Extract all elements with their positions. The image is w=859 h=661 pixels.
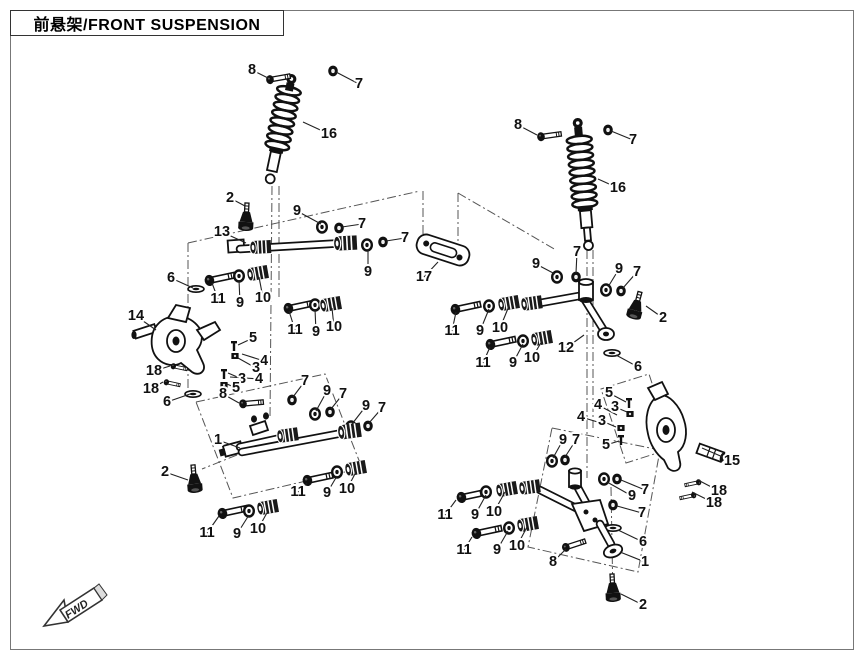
nut-3-4	[626, 411, 633, 417]
nut-7	[287, 395, 297, 406]
part-callout-9: 9	[493, 542, 501, 558]
title-block: 前悬架/FRONT SUSPENSION	[10, 10, 284, 36]
washer-9	[503, 521, 515, 535]
part-callout-7: 7	[339, 386, 347, 402]
nut-7	[612, 474, 622, 485]
shock-absorber-right	[565, 117, 601, 251]
nut-7	[608, 500, 618, 511]
part-callout-8: 8	[549, 554, 557, 570]
part-callout-9: 9	[471, 507, 479, 523]
part-callout-9: 9	[509, 355, 517, 371]
nut-7	[334, 223, 344, 234]
part-callout-9: 9	[233, 526, 241, 542]
part-callout-7: 7	[301, 373, 309, 389]
part-callout-7: 7	[358, 216, 366, 232]
nut-7	[603, 125, 613, 136]
part-callout-11: 11	[287, 322, 302, 338]
part-callout-6: 6	[163, 394, 171, 410]
part-callout-10: 10	[339, 481, 355, 497]
steering-knuckle-right	[646, 382, 726, 471]
nut-3-4	[617, 425, 624, 431]
plate-17	[414, 232, 472, 268]
part-callout-9: 9	[364, 264, 372, 280]
part-callout-18: 18	[706, 495, 722, 511]
part-callout-4: 4	[255, 371, 263, 387]
bushing-10	[319, 296, 342, 312]
shock-absorber-left	[258, 72, 305, 186]
part-callout-7: 7	[573, 244, 581, 260]
page-title: 前悬架/FRONT SUSPENSION	[34, 11, 261, 35]
part-callout-6: 6	[639, 534, 647, 550]
upper-a-arm-right	[520, 279, 614, 340]
pin-5	[618, 435, 624, 445]
nut-7-left-top	[328, 66, 338, 77]
part-callout-8: 8	[514, 117, 522, 133]
nut-7	[571, 272, 581, 283]
nut-3-4	[231, 353, 238, 359]
part-callout-9: 9	[615, 261, 623, 277]
part-callout-11: 11	[210, 291, 225, 307]
part-callout-2: 2	[659, 310, 667, 326]
part-callout-10: 10	[255, 290, 271, 306]
part-callout-11: 11	[199, 525, 214, 541]
part-callout-6: 6	[634, 359, 642, 375]
washer-9	[517, 334, 529, 348]
part-callout-9: 9	[476, 323, 484, 339]
bolt-8	[537, 129, 562, 141]
part-callout-1: 1	[214, 432, 222, 448]
ball-joint-2	[186, 464, 203, 493]
part-callout-15: 15	[724, 453, 740, 469]
part-callout-12: 12	[558, 340, 574, 356]
part-callout-2: 2	[161, 464, 169, 480]
ball-joint-2	[626, 290, 648, 321]
part-callout-1: 1	[641, 554, 649, 570]
part-callout-8: 8	[219, 386, 227, 402]
part-callout-9: 9	[628, 488, 636, 504]
part-callout-8: 8	[248, 62, 256, 78]
steering-knuckle-left	[131, 305, 220, 374]
part-callout-9: 9	[532, 256, 540, 272]
nut-7	[325, 407, 335, 418]
bushing-10	[516, 516, 539, 532]
part-callout-17: 17	[416, 269, 432, 285]
washer-9	[600, 283, 612, 297]
part-callout-9: 9	[362, 398, 370, 414]
bolt-11	[204, 270, 236, 287]
pin-5	[626, 398, 632, 408]
callout-layer: 8716213977917611910119101454334518186871…	[128, 62, 740, 613]
part-callout-16: 16	[610, 180, 626, 196]
part-callout-18: 18	[143, 381, 159, 397]
part-callout-10: 10	[250, 521, 266, 537]
part-callout-7: 7	[629, 132, 637, 148]
washer-9	[480, 485, 492, 499]
part-callout-7: 7	[633, 264, 641, 280]
part-callout-10: 10	[326, 319, 342, 335]
part-callout-10: 10	[524, 350, 540, 366]
bushing-10	[497, 295, 520, 311]
bushing-10	[495, 481, 518, 497]
part-callout-5: 5	[232, 380, 240, 396]
washer-9	[361, 238, 373, 252]
part-callout-11: 11	[290, 484, 305, 500]
left-assembly	[131, 66, 471, 520]
part-callout-7: 7	[401, 230, 409, 246]
fwd-arrow: FWD	[44, 584, 107, 626]
part-callout-9: 9	[236, 295, 244, 311]
part-callout-11: 11	[444, 323, 459, 339]
part-callout-4: 4	[594, 397, 602, 413]
washer-9	[546, 454, 558, 468]
part-callout-7: 7	[572, 432, 580, 448]
part-callout-10: 10	[486, 504, 502, 520]
part-callout-10: 10	[492, 320, 508, 336]
right-assembly	[450, 117, 727, 602]
bolt-11	[471, 523, 503, 540]
pin-5	[221, 369, 227, 379]
part-callout-9: 9	[312, 324, 320, 340]
part-callout-6: 6	[167, 270, 175, 286]
part-callout-7: 7	[378, 400, 386, 416]
part-callout-5: 5	[249, 330, 257, 346]
part-callout-9: 9	[323, 485, 331, 501]
washer-9	[483, 299, 495, 313]
part-callout-14: 14	[128, 308, 144, 324]
part-callout-11: 11	[456, 542, 471, 558]
lower-a-arm-left	[219, 412, 362, 456]
part-callout-3: 3	[611, 399, 619, 415]
part-callout-13: 13	[214, 224, 230, 240]
part-callout-5: 5	[602, 437, 610, 453]
bushing-10	[246, 265, 269, 281]
part-callout-7: 7	[638, 505, 646, 521]
part-callout-4: 4	[577, 409, 585, 425]
pin-5	[231, 341, 237, 351]
bushing-10	[530, 330, 553, 346]
part-callout-11: 11	[475, 355, 490, 371]
part-callout-7: 7	[641, 482, 649, 498]
bolt-11	[450, 299, 482, 316]
bolt-8	[239, 398, 264, 409]
part-callout-16: 16	[321, 126, 337, 142]
part-callout-10: 10	[509, 538, 525, 554]
spacer-6	[185, 391, 201, 397]
part-callout-7: 7	[355, 76, 363, 92]
bolt-18	[163, 379, 181, 388]
part-callout-11: 11	[437, 507, 452, 523]
part-callout-9: 9	[323, 383, 331, 399]
ball-joint-2	[605, 574, 621, 603]
catalog-page: 前悬架/FRONT SUSPENSION	[0, 0, 859, 661]
part-callout-9: 9	[559, 432, 567, 448]
spacer-6	[604, 350, 620, 356]
part-callout-4: 4	[260, 353, 268, 369]
part-callout-3: 3	[598, 413, 606, 429]
part-callout-18: 18	[146, 363, 162, 379]
washer-9	[598, 472, 610, 486]
nut-7	[363, 421, 373, 432]
part-callout-2: 2	[639, 597, 647, 613]
nut-7	[378, 237, 388, 248]
washer-9	[309, 407, 321, 421]
part-callout-2: 2	[226, 190, 234, 206]
suspension-diagram: FWD 871621397791761191011910145433451818…	[0, 0, 859, 661]
part-callout-9: 9	[293, 203, 301, 219]
